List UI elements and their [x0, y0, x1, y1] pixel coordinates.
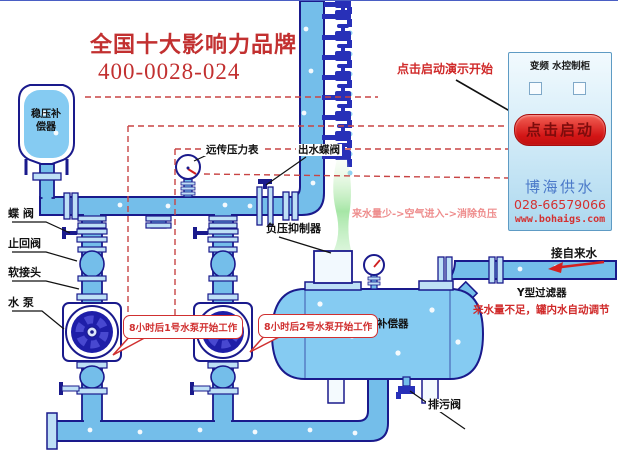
suppressor-label: 负压抑制器: [266, 223, 321, 236]
stabilizer-flange: [33, 173, 61, 180]
air-flow-note: 来水量少->空气进入->消除负压: [352, 209, 497, 221]
inlet-entry-flange: [419, 281, 453, 290]
tank-pressure-gauge: [364, 255, 384, 289]
indicator-checkbox-1[interactable]: [529, 82, 542, 95]
pump2-callout: 8小时后2号水泵开始工作: [258, 314, 378, 338]
negative-pressure-suppressor: [305, 251, 361, 290]
remote-gauge-label: 远传压力表: [204, 144, 261, 156]
y-filter-label: Y型过滤器: [517, 287, 567, 299]
pump1-callout: 8小时后1号水泵开始工作: [123, 315, 243, 339]
company-website: www.bohaigs.com: [509, 214, 611, 225]
compensator-label: 补偿器: [377, 318, 409, 330]
hotline-number: 400-0028-024: [98, 59, 240, 85]
demo-hint-label: 点击启动演示开始: [397, 63, 493, 77]
company-name: 博海供水: [509, 176, 611, 197]
water-pump-label: 水 泵: [8, 297, 34, 310]
outlet-valve-label: 出水蝶阀: [296, 144, 342, 156]
water-pump-1: [63, 303, 121, 361]
indicator-checkbox-2[interactable]: [573, 82, 586, 95]
stabilizer-outlet-pipe: [40, 164, 54, 198]
brand-title: 全国十大影响力品牌: [90, 33, 297, 58]
air-plume: [332, 159, 352, 254]
drain-valve: [396, 377, 415, 399]
company-phone: 028-66579066: [509, 197, 611, 212]
water-supply-diagram: 全国十大影响力品牌 400-0028-024 点击启动演示开始 稳压补偿器 蝶 …: [0, 0, 618, 450]
stabilizer-tank-label: 稳压补偿器: [28, 108, 64, 134]
butterfly-valve-label: 蝶 阀: [8, 208, 34, 221]
suction-end-cap: [47, 413, 57, 449]
check-valve-label: 止回阀: [8, 238, 41, 251]
start-button[interactable]: 点击启动: [514, 114, 606, 146]
cabinet-title: 变频 水控制柜: [509, 58, 611, 72]
remote-pressure-gauge: [176, 155, 200, 197]
tap-water-label: 接自来水: [551, 247, 597, 260]
drain-valve-label: 排污阀: [426, 399, 463, 412]
control-cabinet: 变频 水控制柜 点击启动 博海供水 028-66579066 www.bohai…: [508, 52, 612, 231]
soft-joint-label: 软接头: [8, 267, 41, 280]
low-water-note: 来水量不足，罐内水自动调节: [473, 304, 610, 316]
